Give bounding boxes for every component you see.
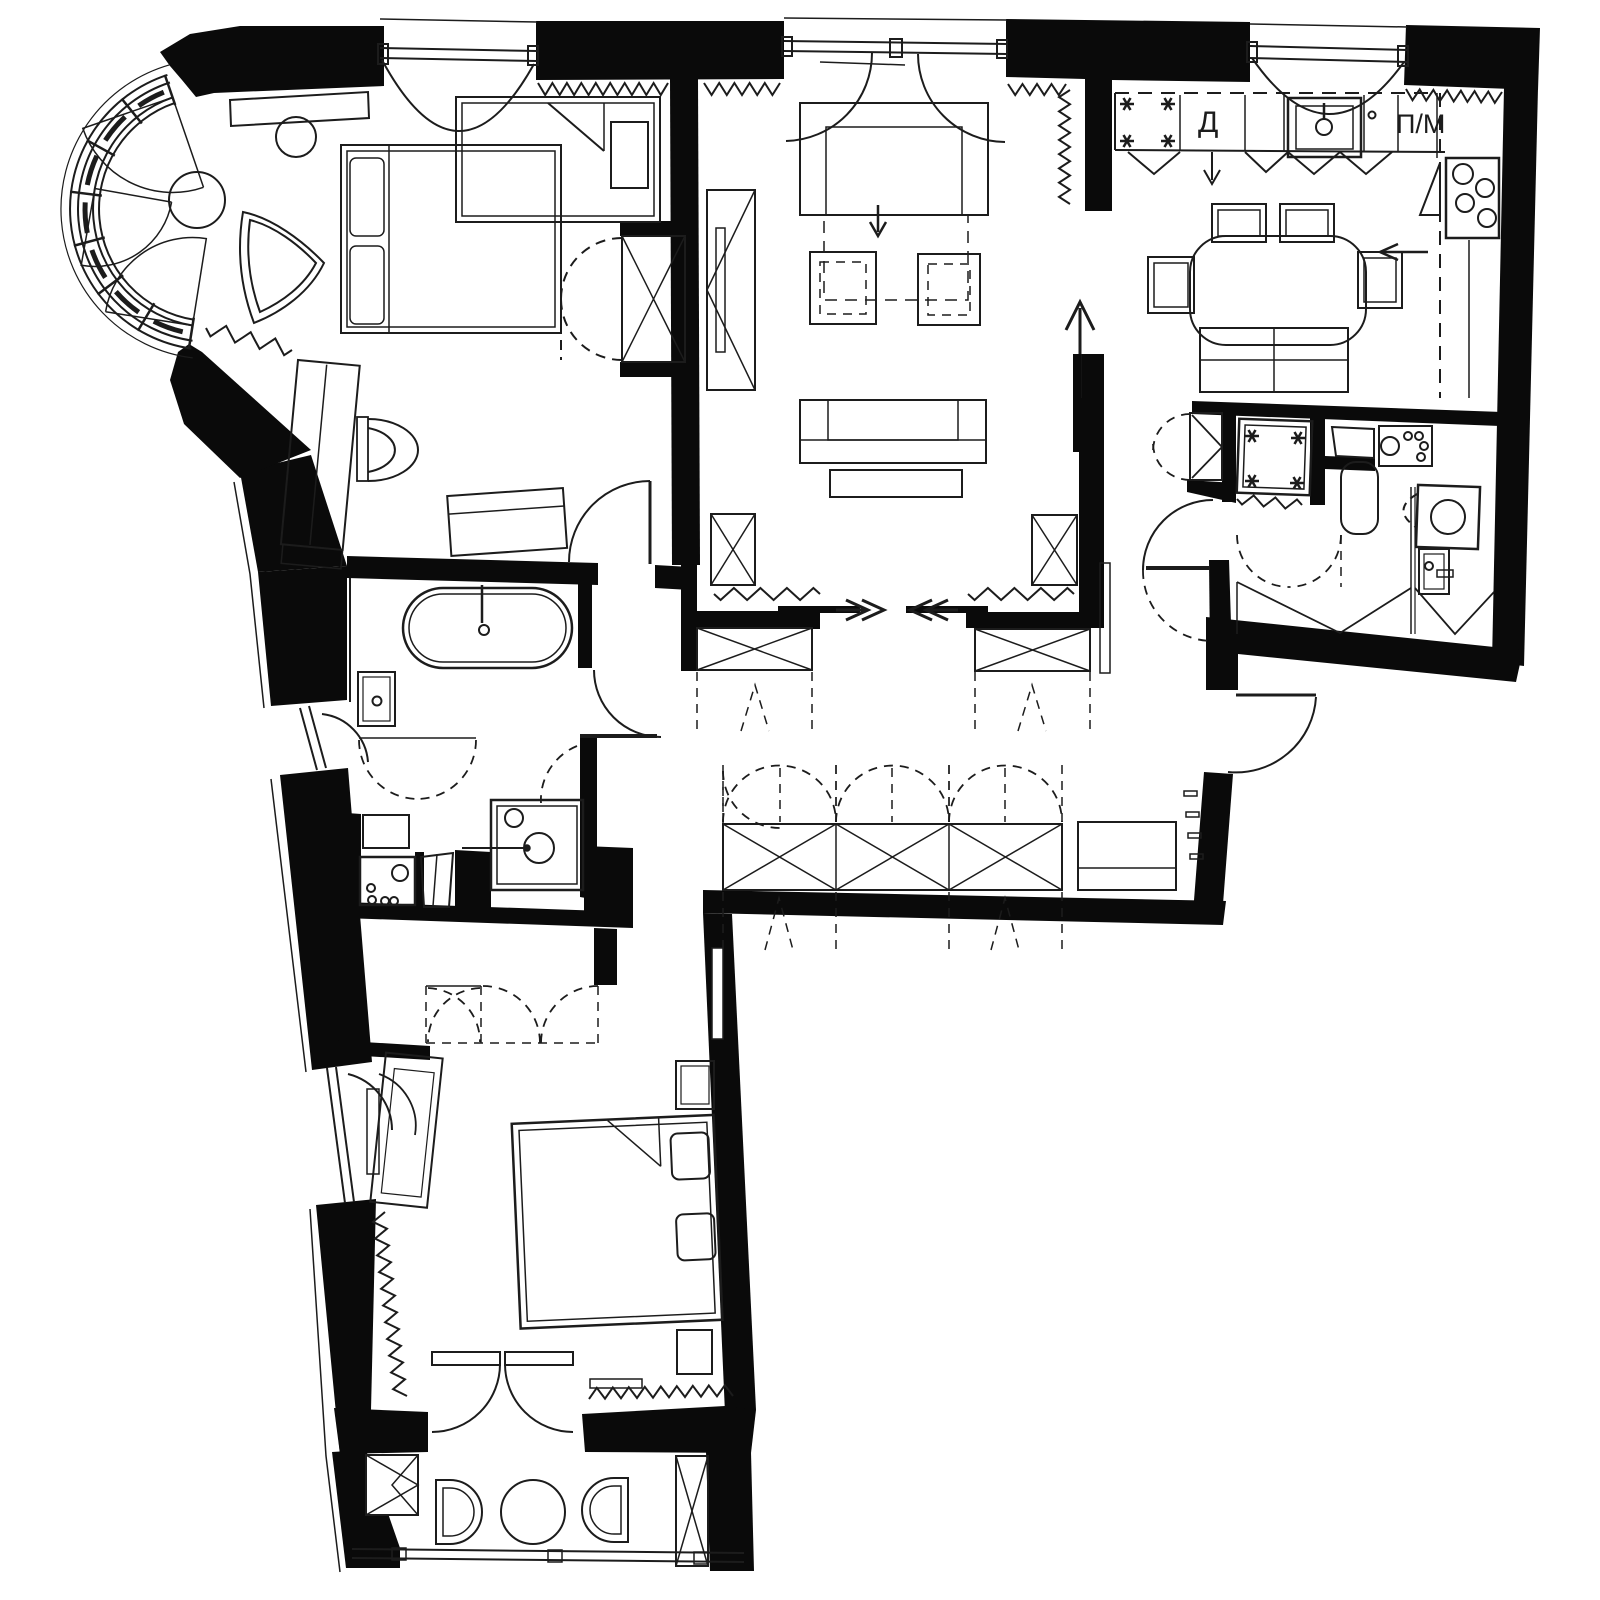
svg-text:Д: Д [1198, 106, 1218, 139]
svg-text:П/М: П/М [1396, 109, 1445, 139]
